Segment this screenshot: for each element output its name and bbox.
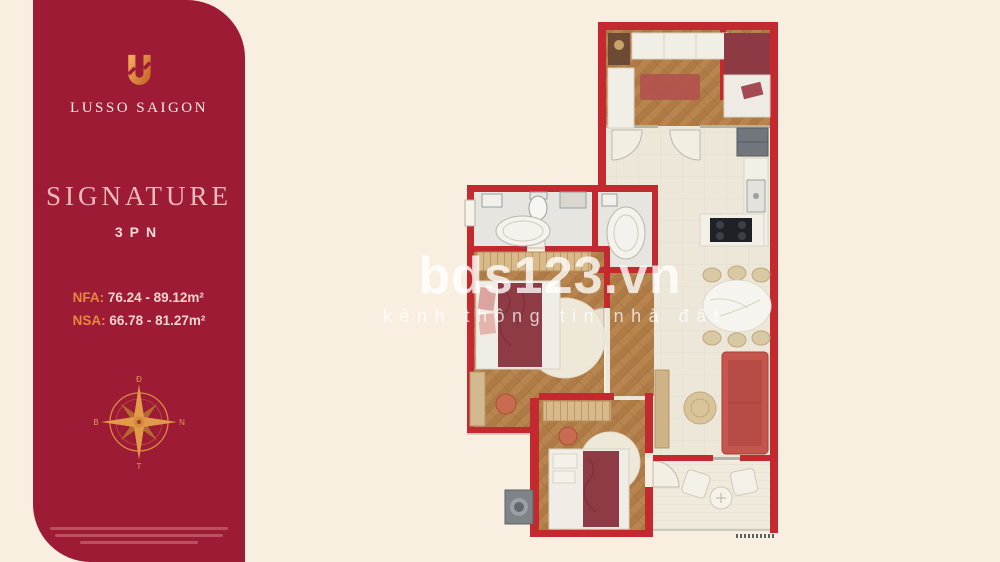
nsa-value: 66.78 - 81.27m² bbox=[109, 313, 205, 328]
svg-text:T: T bbox=[137, 462, 142, 470]
nsa-label: NSA: bbox=[73, 313, 106, 328]
nfa-value: 76.24 - 89.12m² bbox=[108, 290, 204, 305]
compass-icon: Đ N T B bbox=[92, 374, 186, 470]
lusso-logo-icon bbox=[122, 50, 156, 92]
floor-plan-graphic bbox=[455, 12, 795, 552]
svg-text:Đ: Đ bbox=[136, 375, 142, 384]
unit-title: SIGNATURE bbox=[46, 181, 232, 212]
svg-text:N: N bbox=[179, 418, 185, 427]
brand-panel: LUSSO SAIGON SIGNATURE 3PN NFA: 76.24 - … bbox=[33, 0, 245, 562]
svg-text:B: B bbox=[93, 418, 98, 427]
nfa-metric: NFA: 76.24 - 89.12m² bbox=[73, 290, 206, 305]
unit-subtitle: 3PN bbox=[115, 224, 163, 240]
brand-name: LUSSO SAIGON bbox=[70, 100, 208, 117]
page: LUSSO SAIGON SIGNATURE 3PN NFA: 76.24 - … bbox=[0, 0, 1000, 562]
fine-print bbox=[48, 523, 230, 548]
nfa-label: NFA: bbox=[73, 290, 105, 305]
nsa-metric: NSA: 66.78 - 81.27m² bbox=[73, 313, 206, 328]
area-metrics: NFA: 76.24 - 89.12m² NSA: 66.78 - 81.27m… bbox=[73, 290, 206, 336]
